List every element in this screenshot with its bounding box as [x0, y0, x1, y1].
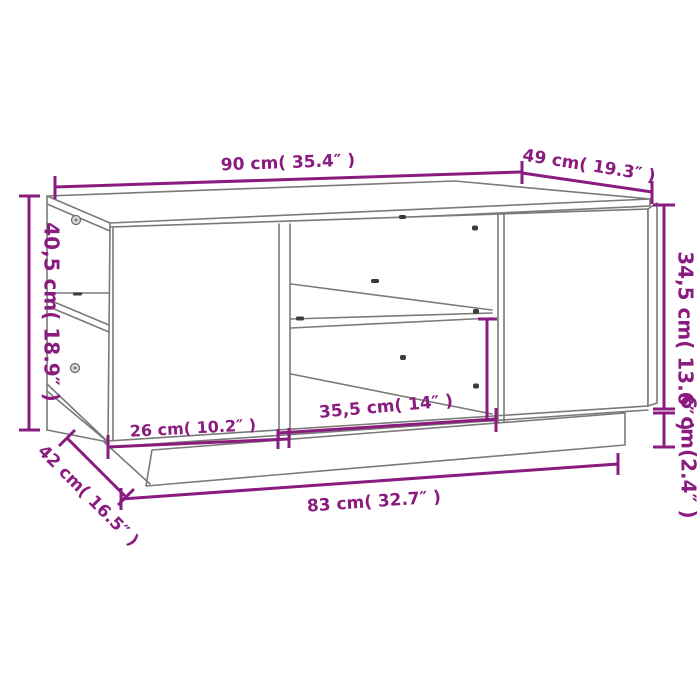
screw-bottom-left: [71, 364, 80, 373]
peg-mark: [73, 293, 82, 296]
furniture-dimension-diagram: 90 cm( 35.4″ ) 49 cm( 19.3″ ) 40,5 cm( 1…: [0, 0, 700, 700]
screw-top-left: [72, 216, 81, 225]
peg-mark: [296, 317, 304, 321]
dim-top-width-label: 90 cm( 35.4″ ): [221, 151, 356, 176]
peg-mark: [473, 309, 479, 314]
peg-mark: [400, 355, 406, 360]
peg-mark: [371, 279, 379, 283]
peg-mark: [472, 226, 478, 231]
dim-plinth-height-label: 6 cm(2.4″ ): [677, 395, 700, 518]
dim-top-depth-label: 49 cm( 19.3″ ): [521, 146, 657, 187]
dim-plinth-width-label: 83 cm( 32.7″ ): [306, 487, 441, 516]
left-bottom-edge: [47, 430, 108, 442]
dim-plinth-height-line: [653, 413, 675, 447]
dim-left-height-label: 40,5 cm( 18.9″ ): [40, 222, 64, 402]
diagram-canvas: 90 cm( 35.4″ ) 49 cm( 19.3″ ) 40,5 cm( 1…: [0, 0, 700, 700]
dim-left-height-line: [19, 196, 40, 430]
right-side-strip: [648, 203, 657, 406]
peg-mark: [473, 384, 479, 389]
peg-mark: [399, 215, 406, 219]
